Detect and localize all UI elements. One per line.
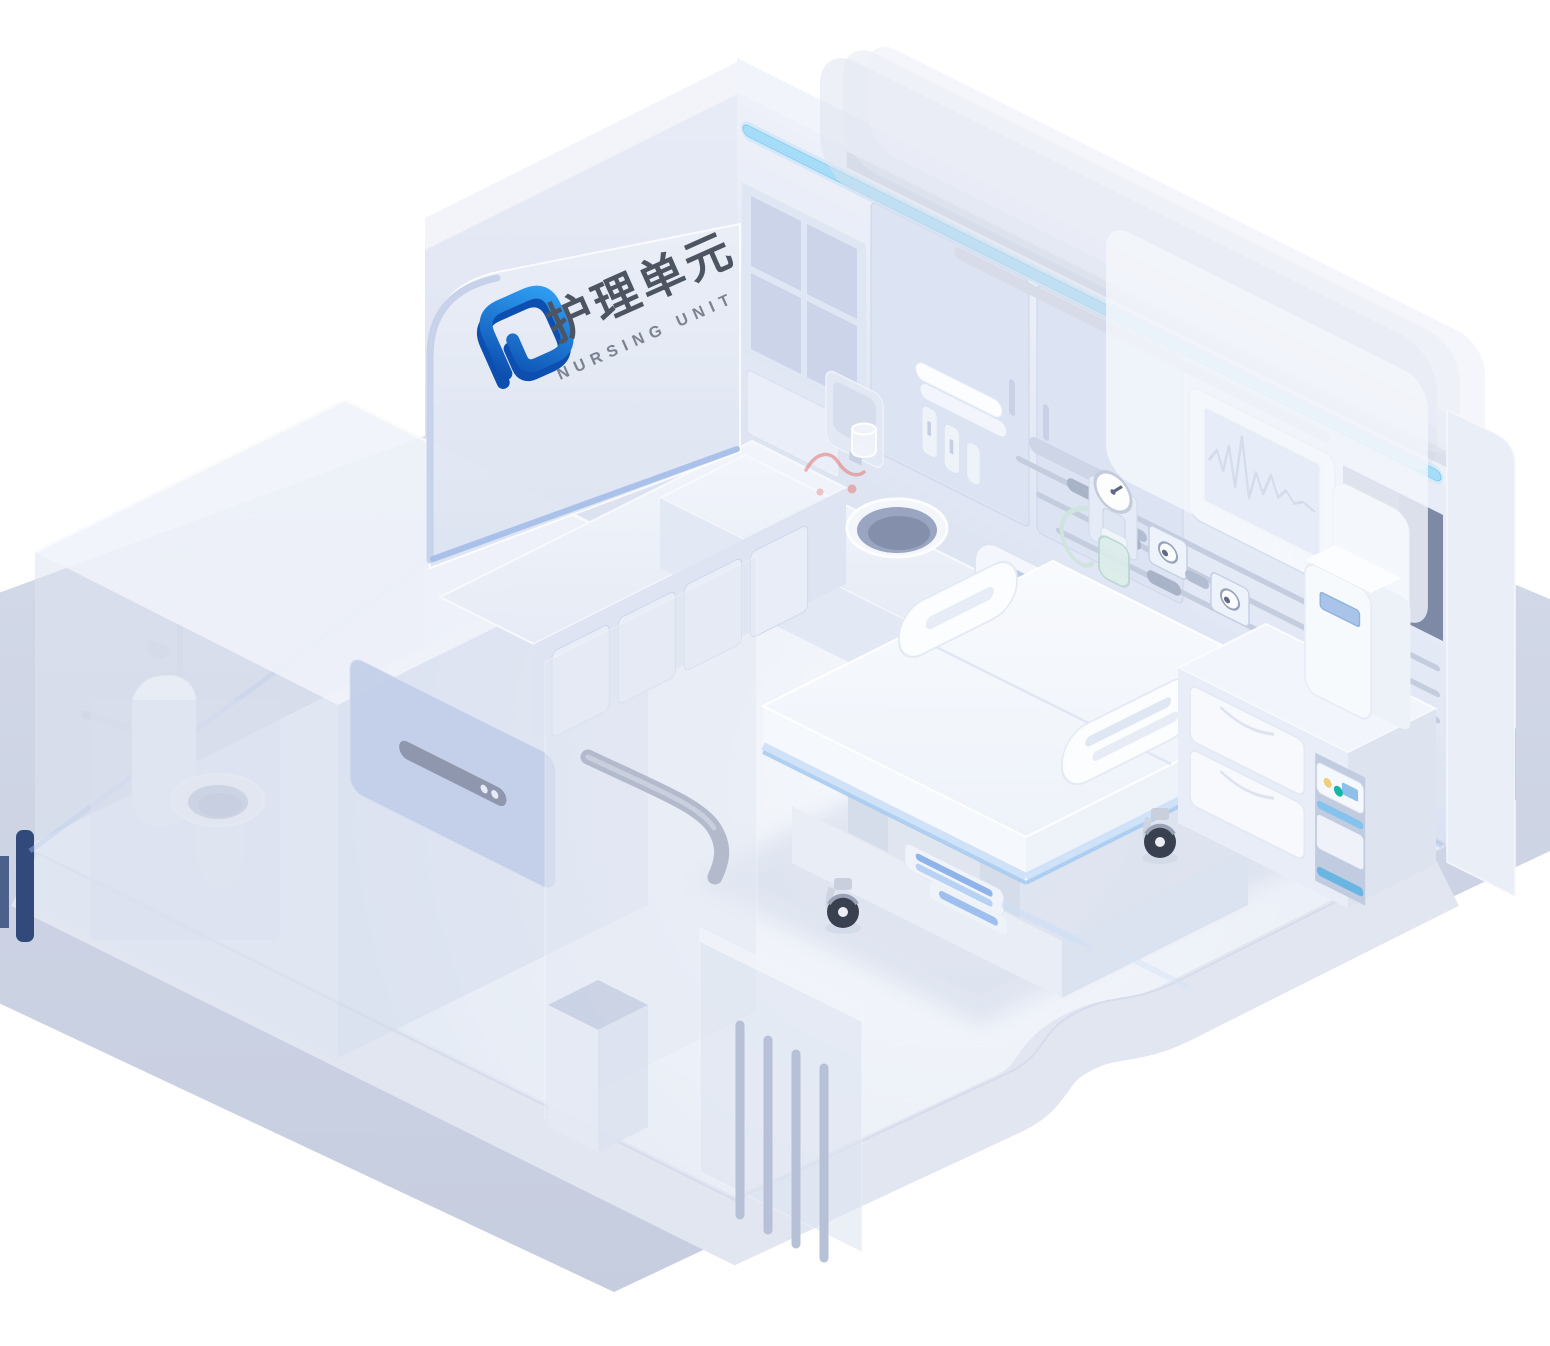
bathroom-vanity <box>90 700 280 940</box>
navy-accent-left <box>16 830 34 942</box>
water-cup <box>852 424 876 458</box>
isometric-scene: 护理单元 NURSING UNIT <box>0 0 1550 1346</box>
sink-basin <box>847 499 947 557</box>
trash-bin <box>548 980 648 1152</box>
nursing-unit-room-illustration: 护理单元 NURSING UNIT <box>0 0 1550 1346</box>
wall-frame-right <box>1447 410 1515 896</box>
